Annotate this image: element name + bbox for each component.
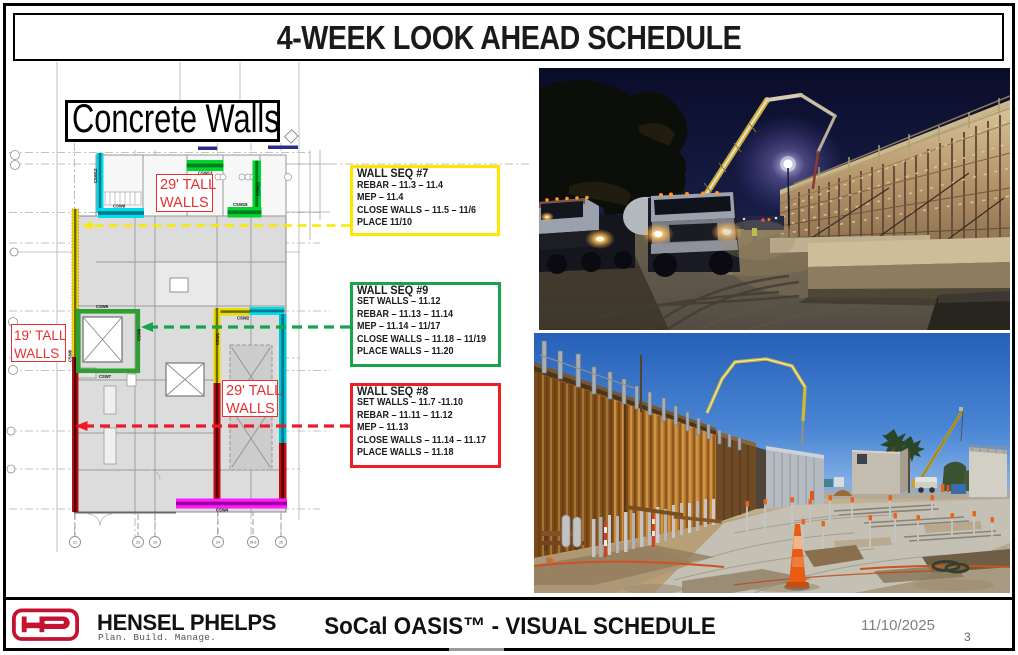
svg-text:23: 23 bbox=[153, 541, 157, 545]
svg-text:24: 24 bbox=[216, 541, 220, 545]
svg-text:CSW11: CSW11 bbox=[256, 181, 261, 196]
svg-text:CSW8: CSW8 bbox=[137, 328, 142, 341]
svg-text:CSW2: CSW2 bbox=[237, 316, 250, 321]
svg-text:25: 25 bbox=[279, 541, 283, 545]
svg-text:CSW1: CSW1 bbox=[215, 332, 220, 345]
svg-text:CSW4: CSW4 bbox=[216, 508, 229, 513]
svg-text:CSW6: CSW6 bbox=[68, 349, 73, 362]
svg-text:CSW18: CSW18 bbox=[233, 202, 248, 207]
svg-text:21: 21 bbox=[73, 541, 77, 545]
svg-text:CSW12: CSW12 bbox=[93, 168, 98, 183]
svg-text:23: 23 bbox=[136, 541, 140, 545]
svg-text:24.6: 24.6 bbox=[250, 541, 257, 545]
svg-text:CSW9: CSW9 bbox=[113, 204, 126, 209]
svg-text:CSW5: CSW5 bbox=[96, 304, 109, 309]
svg-text:CSW7: CSW7 bbox=[99, 374, 112, 379]
